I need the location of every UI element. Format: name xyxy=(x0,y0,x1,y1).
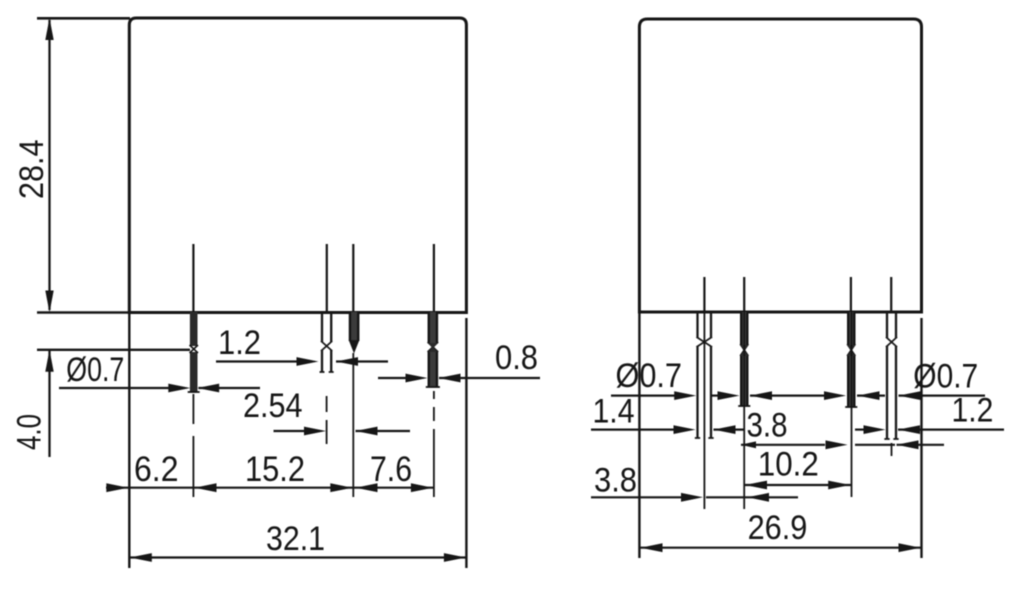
svg-text:1.4: 1.4 xyxy=(593,393,635,431)
svg-text:32.1: 32.1 xyxy=(266,520,325,558)
svg-text:1.2: 1.2 xyxy=(218,324,261,362)
svg-text:6.2: 6.2 xyxy=(134,449,179,489)
svg-text:Ø0.7: Ø0.7 xyxy=(66,351,124,389)
svg-text:1.2: 1.2 xyxy=(952,391,994,429)
svg-text:4.0: 4.0 xyxy=(11,414,49,450)
svg-text:2.54: 2.54 xyxy=(243,387,303,425)
svg-text:Ø0.7: Ø0.7 xyxy=(616,357,683,395)
svg-text:10.2: 10.2 xyxy=(758,446,819,484)
svg-text:26.9: 26.9 xyxy=(748,509,808,547)
svg-text:7.6: 7.6 xyxy=(370,449,412,489)
svg-text:Ø0.7: Ø0.7 xyxy=(913,358,978,396)
svg-text:3.8: 3.8 xyxy=(594,462,637,500)
svg-text:28.4: 28.4 xyxy=(13,140,51,200)
svg-text:3.8: 3.8 xyxy=(747,406,788,444)
svg-text:0.8: 0.8 xyxy=(495,339,538,377)
svg-text:15.2: 15.2 xyxy=(245,449,305,489)
